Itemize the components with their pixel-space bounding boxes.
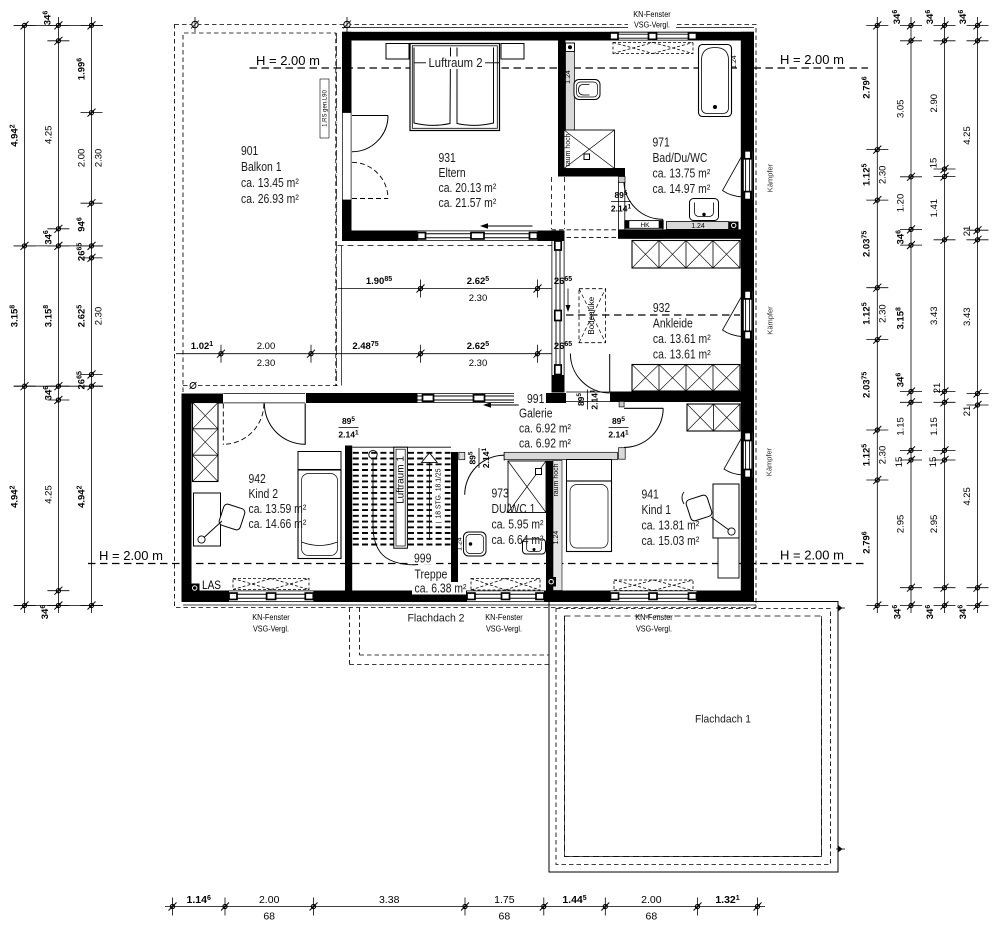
svg-text:Ankleide: Ankleide [653, 316, 693, 331]
svg-text:H = 2.00 m: H = 2.00 m [256, 53, 320, 68]
svg-text:2.30: 2.30 [878, 166, 889, 185]
svg-text:4.25: 4.25 [43, 126, 54, 145]
svg-text:68: 68 [646, 911, 658, 923]
svg-text:2.30: 2.30 [878, 446, 889, 465]
svg-text:H = 2.00 m: H = 2.00 m [780, 548, 844, 563]
svg-text:KN-Fenster: KN-Fenster [485, 613, 523, 622]
svg-text:942: 942 [249, 471, 266, 486]
svg-text:18 STG. 18.1/25: 18 STG. 18.1/25 [434, 469, 443, 519]
svg-text:1.15: 1.15 [896, 417, 907, 436]
svg-text:KN-Fenster: KN-Fenster [635, 613, 673, 622]
svg-text:Kind 1: Kind 1 [642, 502, 672, 517]
svg-text:Kämpfer: Kämpfer [765, 447, 774, 476]
svg-text:1.20: 1.20 [896, 194, 907, 213]
svg-text:2.30: 2.30 [469, 293, 488, 304]
svg-text:15: 15 [929, 158, 940, 169]
svg-text:1.24: 1.24 [457, 537, 464, 551]
svg-text:ca. 15.03 m²: ca. 15.03 m² [642, 533, 700, 548]
svg-text:Flachdach 2: Flachdach 2 [408, 613, 465, 625]
svg-text:999: 999 [414, 551, 431, 566]
svg-text:ca. 14.97 m²: ca. 14.97 m² [653, 181, 711, 196]
svg-text:DU/WC 1: DU/WC 1 [492, 501, 536, 516]
svg-text:ca. 5.95 m²: ca. 5.95 m² [492, 517, 545, 532]
svg-text:15: 15 [928, 457, 939, 468]
svg-text:VSG-Vergl.: VSG-Vergl. [253, 625, 289, 634]
svg-text:1.RS gen.L90: 1.RS gen.L90 [323, 89, 329, 126]
svg-text:ca. 13.75 m²: ca. 13.75 m² [653, 166, 711, 181]
svg-text:1.75: 1.75 [494, 894, 515, 906]
svg-text:2.95: 2.95 [896, 515, 907, 534]
svg-text:4.25: 4.25 [43, 485, 54, 504]
svg-text:ca. 14.66 m²: ca. 14.66 m² [249, 516, 307, 531]
svg-text:2.00: 2.00 [641, 894, 662, 906]
svg-text:HK: HK [640, 222, 650, 229]
svg-text:Bodenluke: Bodenluke [587, 296, 596, 334]
svg-text:Balkon 1: Balkon 1 [241, 159, 282, 174]
svg-text:VSG-Vergl.: VSG-Vergl. [636, 625, 672, 634]
svg-text:2.30: 2.30 [257, 358, 276, 369]
svg-text:LAS: LAS [202, 580, 221, 592]
svg-text:991: 991 [527, 391, 544, 406]
svg-text:Kind 2: Kind 2 [249, 486, 279, 501]
svg-text:931: 931 [439, 150, 456, 165]
svg-text:Kämpfer: Kämpfer [766, 306, 775, 335]
svg-text:973: 973 [492, 486, 509, 501]
svg-text:ca. 6.92 m²: ca. 6.92 m² [519, 421, 572, 436]
svg-text:1.15: 1.15 [929, 417, 940, 436]
svg-text:2.00: 2.00 [257, 341, 276, 352]
svg-text:68: 68 [263, 911, 275, 923]
svg-text:3.05: 3.05 [896, 100, 907, 119]
svg-text:2.30: 2.30 [469, 358, 488, 369]
svg-text:ca. 6.38 m²: ca. 6.38 m² [415, 581, 468, 596]
svg-text:Eltern: Eltern [439, 165, 466, 180]
svg-text:Kämpfer: Kämpfer [766, 163, 775, 192]
svg-text:21: 21 [962, 226, 973, 237]
svg-text:21: 21 [932, 383, 943, 394]
svg-text:1.24: 1.24 [731, 55, 738, 69]
svg-text:1.24: 1.24 [691, 223, 705, 230]
svg-text:2.90: 2.90 [929, 94, 940, 113]
svg-text:2.30: 2.30 [878, 304, 889, 323]
svg-text:15: 15 [894, 457, 905, 468]
svg-text:Bad/Du/WC: Bad/Du/WC [653, 150, 708, 165]
svg-text:Luftraum 1: Luftraum 1 [396, 456, 407, 504]
svg-text:941: 941 [642, 487, 659, 502]
svg-text:Treppe: Treppe [415, 567, 448, 582]
svg-text:ca. 13.45 m²: ca. 13.45 m² [241, 175, 299, 190]
svg-text:raum hoch: raum hoch [553, 463, 560, 496]
svg-text:1.41: 1.41 [929, 199, 940, 218]
svg-text:3.43: 3.43 [929, 306, 940, 325]
svg-text:3.43: 3.43 [962, 307, 973, 326]
svg-text:ca. 20.13 m²: ca. 20.13 m² [439, 180, 497, 195]
svg-text:VSG-Vergl.: VSG-Vergl. [634, 21, 670, 30]
svg-text:1.24: 1.24 [553, 531, 560, 545]
svg-text:H = 2.00 m: H = 2.00 m [99, 548, 163, 563]
svg-text:2.30: 2.30 [94, 307, 105, 326]
svg-text:VSG-Vergl.: VSG-Vergl. [486, 625, 522, 634]
svg-text:Flachdach 1: Flachdach 1 [695, 714, 751, 726]
svg-text:raum hoch: raum hoch [565, 133, 572, 166]
svg-text:ca. 13.59 m²: ca. 13.59 m² [249, 501, 307, 516]
svg-text:ca. 13.61 m²: ca. 13.61 m² [653, 331, 711, 346]
svg-text:971: 971 [653, 135, 670, 150]
svg-text:2.95: 2.95 [929, 515, 940, 534]
svg-text:H = 2.00 m: H = 2.00 m [780, 52, 844, 67]
svg-text:Luftraum 2: Luftraum 2 [429, 56, 483, 70]
svg-text:ca. 26.93 m²: ca. 26.93 m² [241, 191, 299, 206]
svg-text:KN-Fenster: KN-Fenster [252, 613, 290, 622]
svg-text:2.00: 2.00 [259, 894, 280, 906]
svg-text:ca. 6.64 m²: ca. 6.64 m² [492, 532, 545, 547]
svg-text:21: 21 [962, 406, 973, 417]
svg-text:2.30: 2.30 [94, 149, 105, 168]
svg-text:932: 932 [653, 300, 670, 315]
svg-text:KN-Fenster: KN-Fenster [633, 10, 671, 19]
svg-text:1.24: 1.24 [565, 70, 572, 84]
svg-text:68: 68 [499, 911, 511, 923]
svg-text:4.25: 4.25 [962, 487, 973, 506]
svg-text:ca. 6.92 m²: ca. 6.92 m² [519, 436, 572, 451]
svg-text:ca. 21.57 m²: ca. 21.57 m² [439, 195, 497, 210]
svg-text:ca. 13.81 m²: ca. 13.81 m² [642, 518, 700, 533]
svg-text:2.00: 2.00 [77, 149, 88, 168]
svg-text:Galerie: Galerie [519, 406, 553, 421]
svg-text:901: 901 [241, 143, 258, 158]
svg-text:4.25: 4.25 [962, 126, 973, 145]
svg-text:ca. 13.61 m²: ca. 13.61 m² [653, 347, 711, 362]
svg-text:3.38: 3.38 [379, 894, 400, 906]
